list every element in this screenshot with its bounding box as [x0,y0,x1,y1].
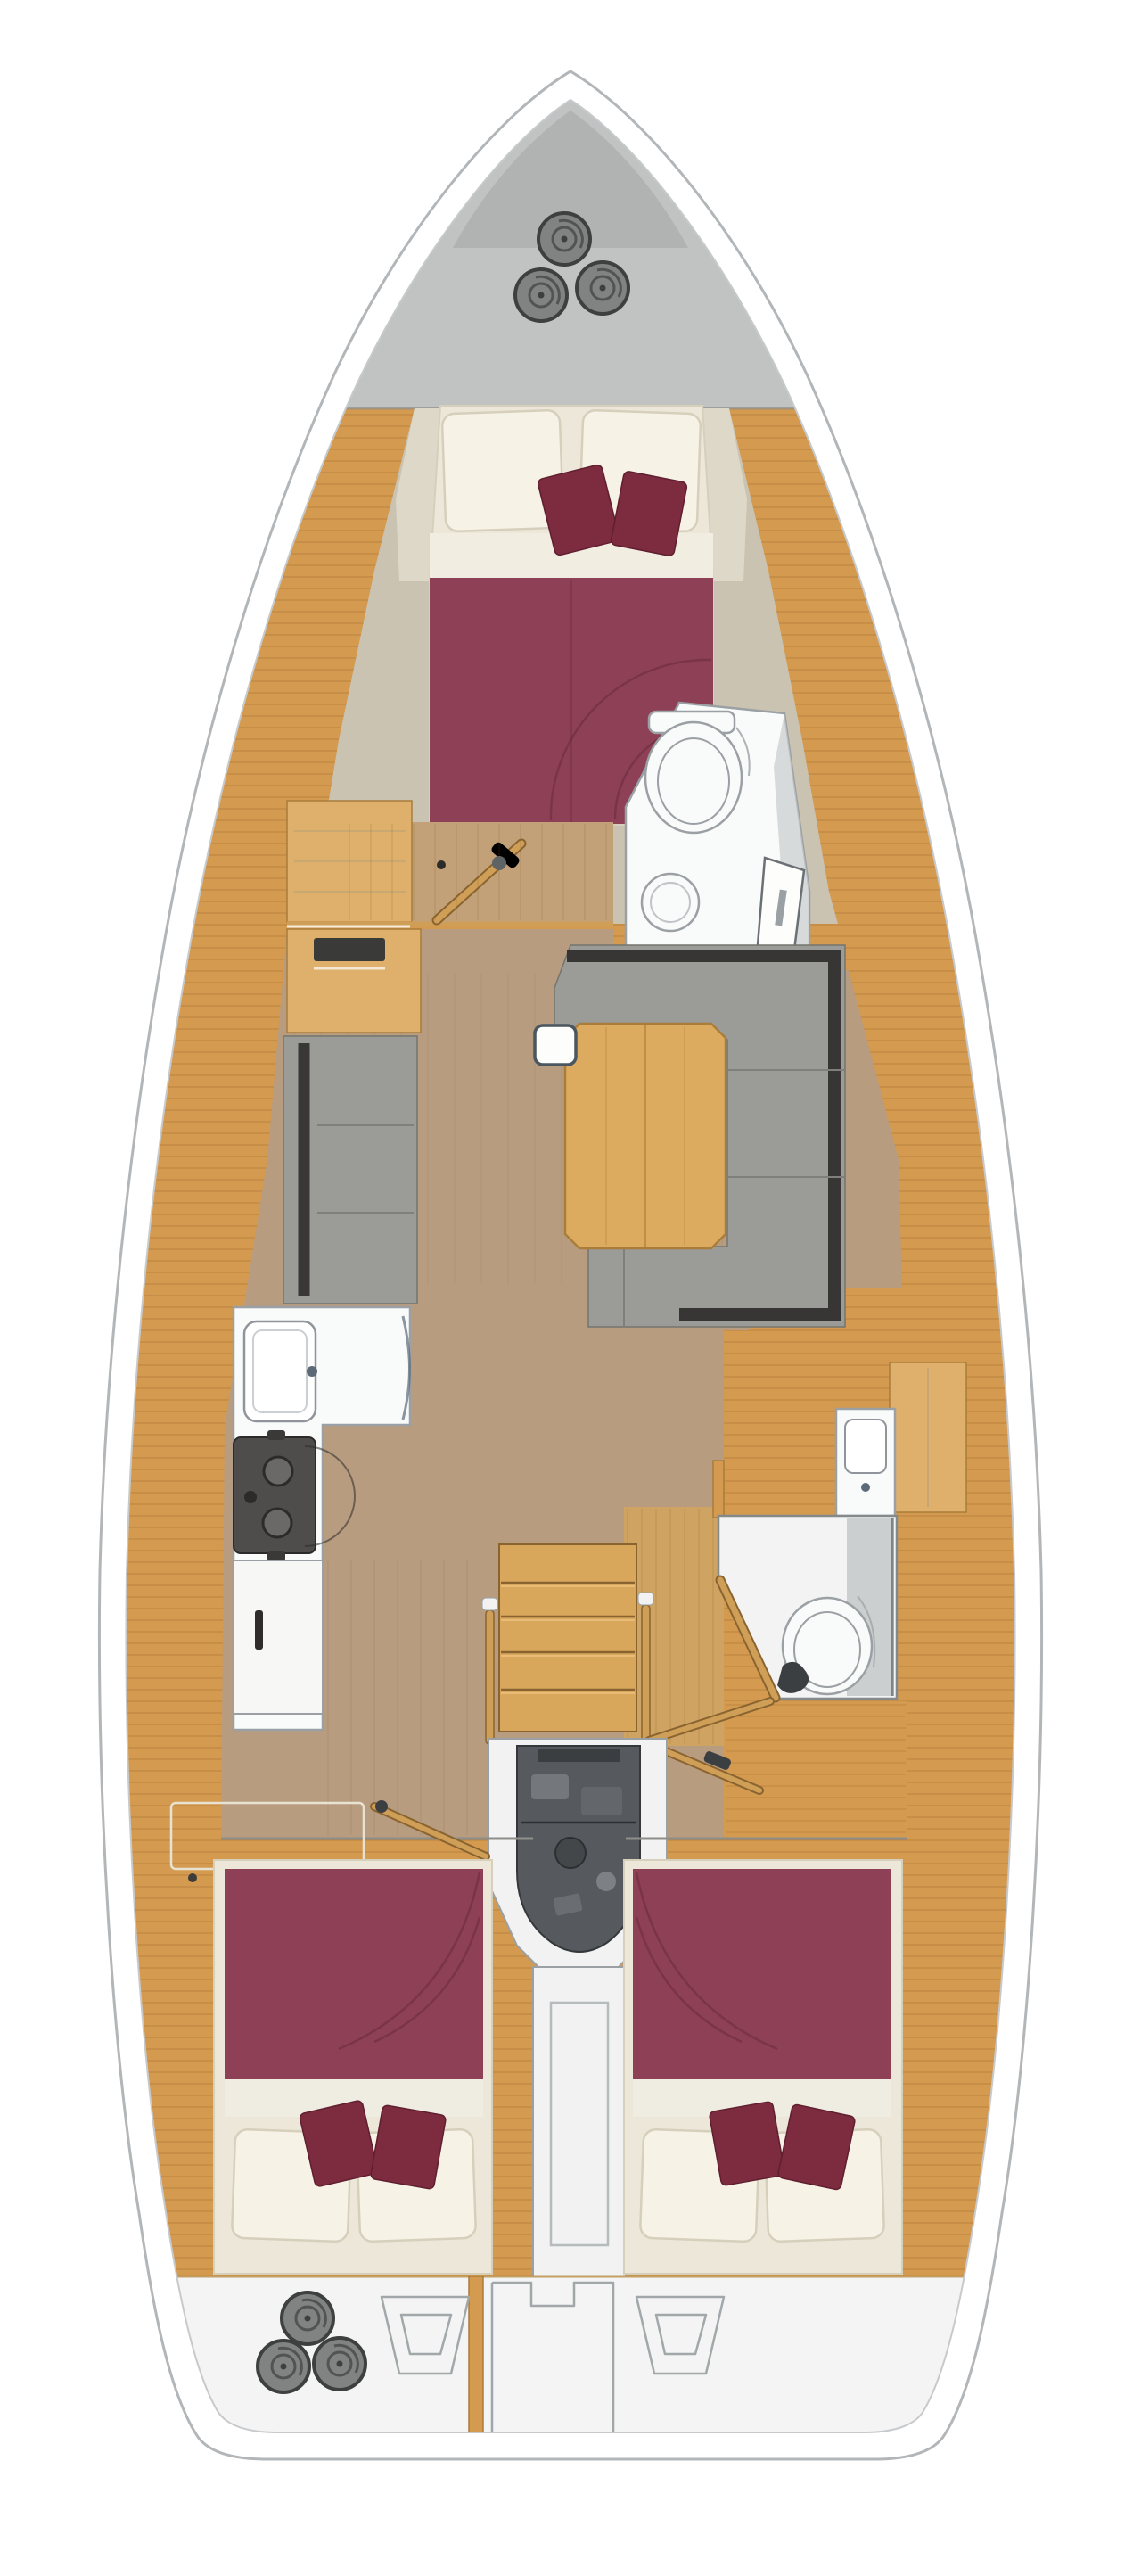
burner [263,1509,291,1537]
port-berth-duvet [225,1869,483,2079]
yacht-floorplan-image [0,0,1141,2576]
starboard-berth-duvet [633,1869,891,2079]
head-partition [713,1461,724,1518]
galley-faucet [307,1366,317,1377]
fridge-handle [255,1610,263,1650]
galley-sink [244,1321,316,1421]
burner [264,1457,292,1486]
sideboard-inset [314,938,385,961]
table-fitting [535,1025,576,1065]
door-stop [437,860,446,869]
starboard-aft-cabin [624,1860,902,2274]
hull-interior [89,100,1052,2463]
companionway-stairs [499,1544,636,1732]
starboard-cabin-entry-deck [724,1701,907,1839]
port-aft-cabin [171,1800,492,2274]
refrigerator [234,1560,323,1714]
vanity-basin [845,1420,886,1473]
keel-corridor [533,1967,626,2279]
companionway-aisle [624,1507,724,1746]
centerline-gate [469,2276,483,2457]
floorplan-svg [0,0,1141,2576]
